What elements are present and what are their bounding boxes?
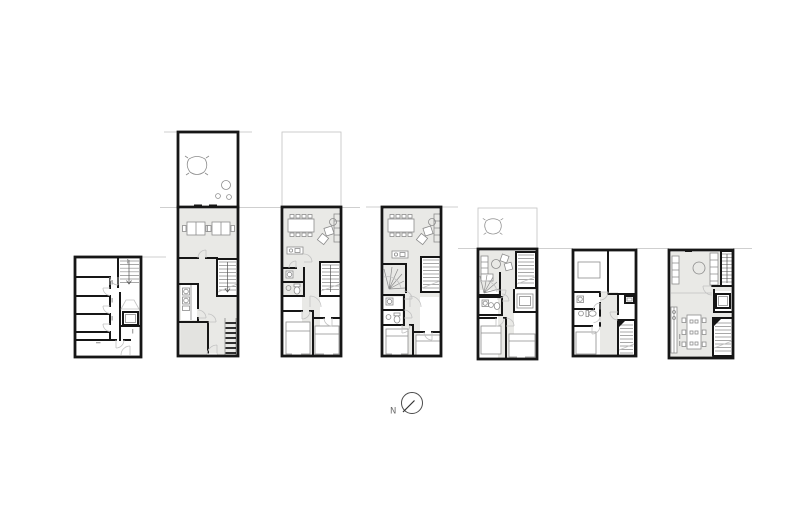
vent-mark bbox=[194, 205, 202, 208]
staircase bbox=[217, 259, 238, 296]
toilet bbox=[494, 303, 500, 310]
tree-icon bbox=[483, 218, 503, 234]
lift-box bbox=[715, 291, 733, 311]
hall-floor bbox=[600, 292, 618, 356]
bed-left bbox=[481, 326, 501, 354]
kitchen-counter bbox=[671, 307, 677, 353]
staircase bbox=[618, 320, 635, 356]
bathroom bbox=[577, 296, 596, 317]
terrace-outline bbox=[282, 132, 341, 206]
staircase-lower bbox=[713, 318, 733, 356]
compass-needle bbox=[403, 401, 415, 413]
north-arrow-compass: N bbox=[390, 393, 423, 417]
staircase bbox=[320, 262, 341, 296]
bathroom bbox=[384, 295, 404, 325]
sink bbox=[386, 315, 391, 320]
shelving-left bbox=[672, 256, 679, 284]
bed-bottom-left bbox=[576, 332, 596, 354]
staircase-upper bbox=[721, 251, 733, 286]
duct-hood bbox=[121, 300, 139, 309]
floor-plan-3 bbox=[282, 132, 341, 359]
floor-plan-7 bbox=[669, 249, 733, 362]
floor-plan-5 bbox=[478, 208, 537, 362]
vent-mark bbox=[209, 205, 217, 208]
sink bbox=[489, 303, 494, 308]
bed-right bbox=[509, 334, 535, 357]
staircase bbox=[120, 260, 139, 284]
kitchen-island bbox=[287, 247, 303, 254]
north-label: N bbox=[390, 407, 396, 417]
toilet bbox=[294, 284, 300, 294]
bed-left bbox=[286, 322, 310, 354]
shaft bbox=[123, 312, 138, 325]
toilet bbox=[586, 311, 596, 317]
utility-room bbox=[514, 290, 536, 312]
floor-plan-2 bbox=[178, 132, 238, 359]
floor-plan-6 bbox=[573, 250, 636, 360]
dining-table bbox=[682, 315, 706, 349]
duct-box bbox=[625, 296, 634, 303]
kitchen-island bbox=[392, 251, 408, 258]
bed-top-left bbox=[578, 262, 600, 278]
bed-right bbox=[315, 326, 339, 354]
sink bbox=[579, 311, 584, 316]
staircase bbox=[421, 257, 441, 292]
interior-walls bbox=[77, 257, 141, 340]
floor-plan-1 bbox=[75, 257, 141, 357]
shelving-right bbox=[710, 253, 718, 285]
toilet bbox=[394, 313, 400, 323]
architectural-drawing-canvas: N bbox=[0, 0, 800, 532]
floor-plans-sheet: N bbox=[0, 0, 800, 532]
staircase bbox=[516, 252, 536, 288]
kitchen bbox=[181, 285, 197, 320]
roof-terrace bbox=[180, 134, 237, 206]
bed-right bbox=[416, 335, 440, 356]
storage-room bbox=[181, 323, 207, 354]
floor-plan-4 bbox=[382, 207, 441, 359]
terrace bbox=[478, 208, 537, 248]
